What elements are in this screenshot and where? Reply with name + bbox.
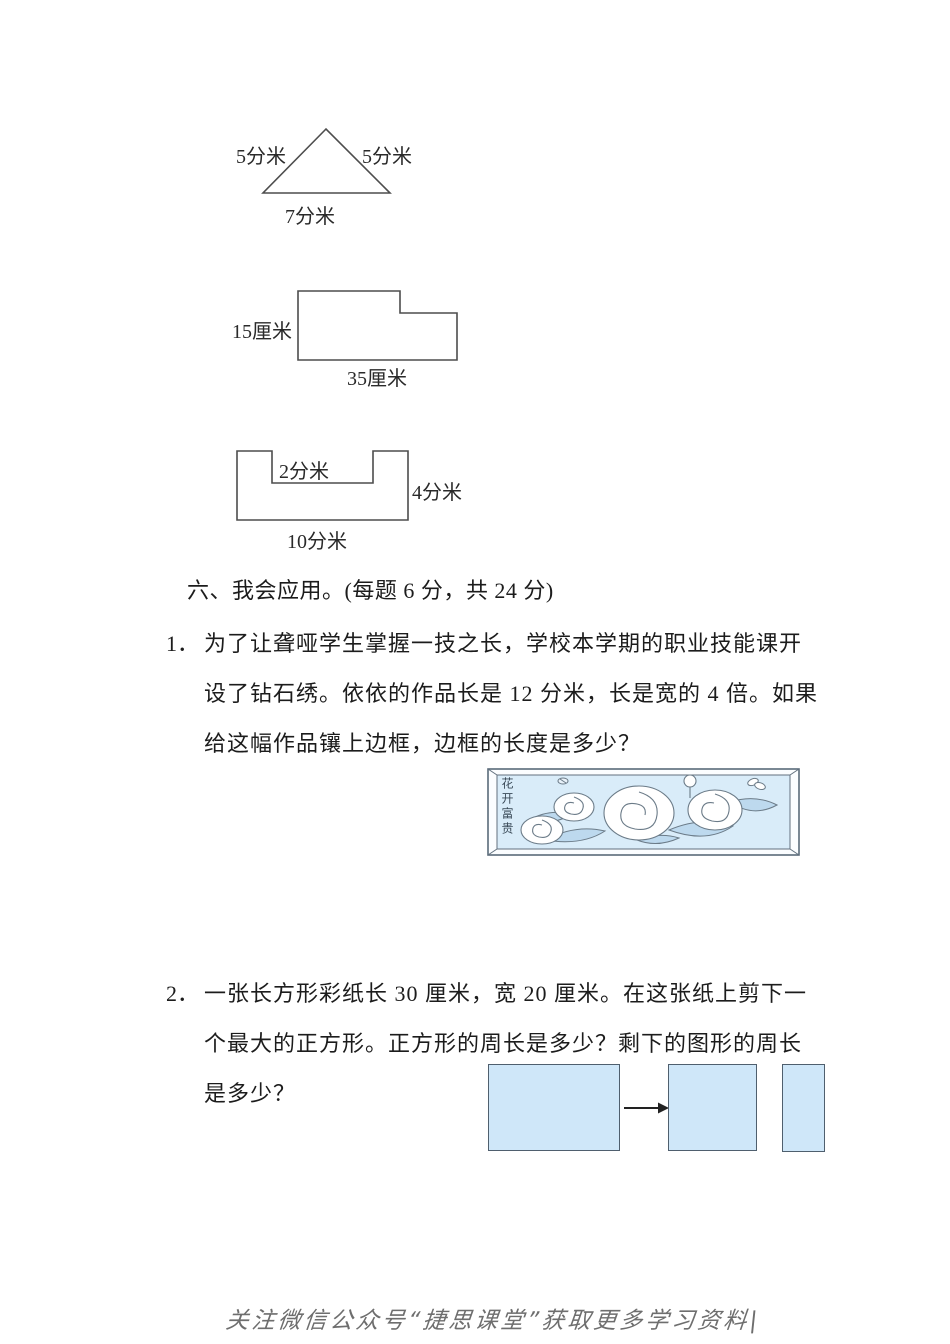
triangle-right-side-label: 5分米 — [362, 140, 412, 169]
question1-number: 1． — [166, 626, 199, 658]
step-shape-figure — [296, 289, 460, 363]
triangle-left-side-label: 5分米 — [236, 140, 286, 169]
question1-line3: 给这幅作品镶上边框，边框的长度是多少？ — [204, 726, 641, 758]
question1-line2: 设了钻石绣。依依的作品长是 12 分米，长是宽的 4 倍。如果 — [204, 676, 818, 708]
u-shape-right-label: 4分米 — [412, 476, 462, 505]
step-shape-left-label: 15厘米 — [232, 315, 292, 344]
diagram-original-rectangle — [488, 1064, 620, 1151]
u-shape-notch-label: 2分米 — [279, 455, 329, 484]
question2-line2: 个最大的正方形。正方形的周长是多少？剩下的图形的周长 — [204, 1026, 802, 1058]
u-shape-bottom-label: 10分米 — [287, 525, 347, 554]
worksheet-page: { "figures": { "triangle": { "left_label… — [0, 0, 950, 1344]
section-heading: 六、我会应用。(每题 6 分，共 24 分) — [187, 573, 554, 605]
rose-artwork-illustration — [487, 768, 800, 856]
triangle-bottom-side-label: 7分米 — [285, 200, 335, 229]
artwork-caption-text: 花开富贵 — [499, 777, 516, 843]
diagram-remaining-strip — [782, 1064, 825, 1152]
question2-number: 2． — [166, 976, 199, 1008]
step-shape-bottom-label: 35厘米 — [347, 362, 407, 391]
arrow-icon — [622, 1096, 670, 1120]
diagram-cut-square — [668, 1064, 757, 1151]
question2-line1: 一张长方形彩纸长 30 厘米，宽 20 厘米。在这张纸上剪下一 — [204, 976, 807, 1008]
watermark-text: 关注微信公众号“捷思课堂”获取更多学习资料| — [224, 1301, 728, 1335]
question2-line3: 是多少？ — [204, 1076, 296, 1108]
question1-line1: 为了让聋哑学生掌握一技之长，学校本学期的职业技能课开 — [204, 626, 802, 658]
